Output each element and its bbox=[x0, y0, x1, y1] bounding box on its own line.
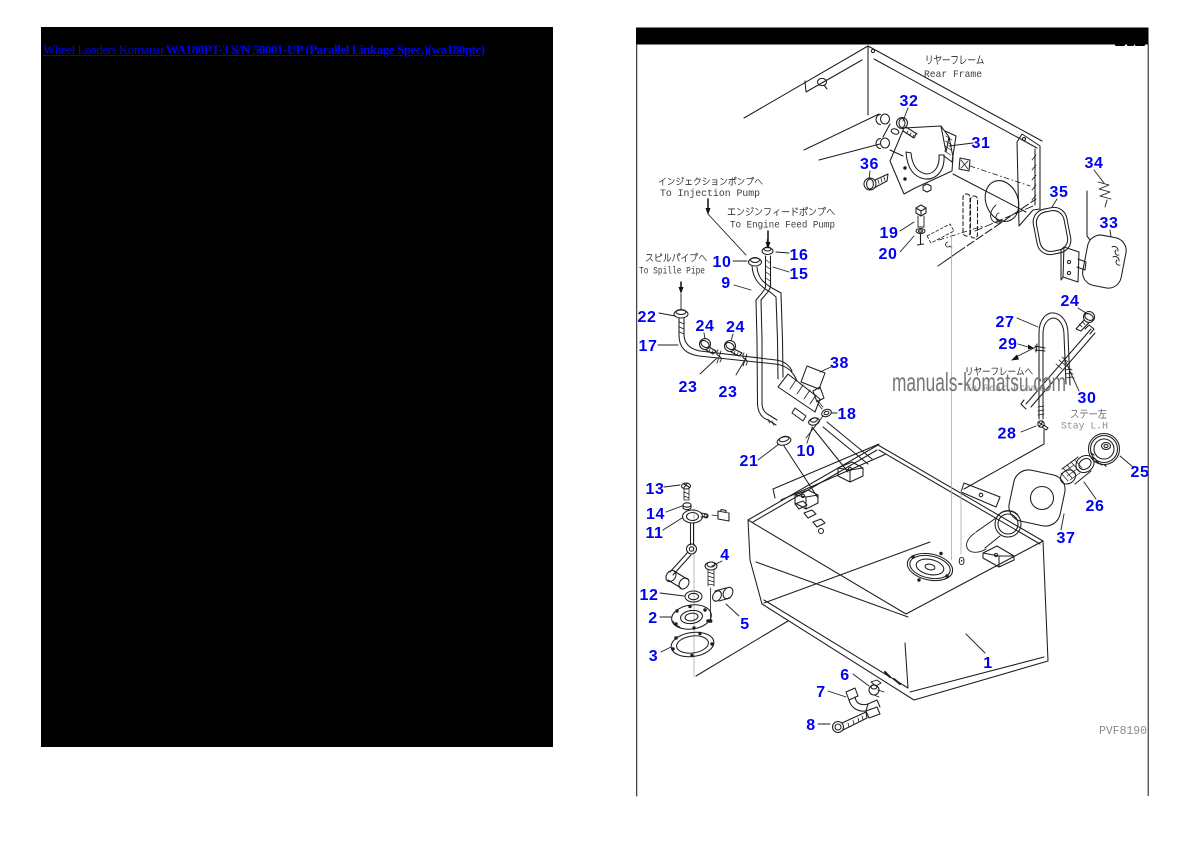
svg-text:manuals-komatsu.com: manuals-komatsu.com bbox=[892, 367, 1066, 397]
svg-text:1: 1 bbox=[983, 655, 993, 672]
svg-text:6: 6 bbox=[840, 667, 850, 684]
svg-text:To Spille Pipe: To Spille Pipe bbox=[639, 266, 705, 278]
svg-text:24: 24 bbox=[1061, 293, 1080, 310]
svg-text:20: 20 bbox=[879, 246, 898, 263]
svg-text:17: 17 bbox=[639, 338, 658, 355]
svg-text:9: 9 bbox=[721, 275, 731, 292]
svg-text:34: 34 bbox=[1085, 155, 1104, 172]
svg-text:5: 5 bbox=[740, 616, 750, 633]
svg-text:13: 13 bbox=[646, 481, 665, 498]
svg-text:15: 15 bbox=[790, 266, 809, 283]
svg-text:10: 10 bbox=[797, 443, 816, 460]
svg-text:26: 26 bbox=[1086, 498, 1105, 515]
svg-text:To Engine Feed Pump: To Engine Feed Pump bbox=[730, 220, 835, 232]
svg-text:24: 24 bbox=[696, 318, 715, 335]
svg-text:35: 35 bbox=[1050, 184, 1069, 201]
svg-text:To Injection Pump: To Injection Pump bbox=[660, 188, 760, 200]
svg-text:8: 8 bbox=[806, 717, 816, 734]
svg-text:16: 16 bbox=[790, 247, 809, 264]
svg-text:29: 29 bbox=[999, 336, 1018, 353]
svg-text:32: 32 bbox=[900, 93, 919, 110]
svg-text:10: 10 bbox=[713, 254, 732, 271]
svg-text:0: 0 bbox=[958, 555, 965, 569]
svg-text:27: 27 bbox=[996, 314, 1015, 331]
svg-text:31: 31 bbox=[972, 135, 991, 152]
svg-text:30: 30 bbox=[1078, 390, 1097, 407]
svg-text:2: 2 bbox=[648, 610, 658, 627]
svg-text:4: 4 bbox=[720, 547, 730, 564]
svg-text:33: 33 bbox=[1100, 215, 1119, 232]
svg-text:36: 36 bbox=[860, 156, 879, 173]
svg-text:38: 38 bbox=[830, 355, 849, 372]
svg-text:14: 14 bbox=[646, 506, 665, 523]
svg-text:22: 22 bbox=[638, 309, 657, 326]
svg-text:37: 37 bbox=[1057, 530, 1076, 547]
svg-text:23: 23 bbox=[679, 379, 698, 396]
svg-text:7: 7 bbox=[816, 684, 826, 701]
svg-text:12: 12 bbox=[640, 587, 659, 604]
svg-text:Rear Frame: Rear Frame bbox=[924, 69, 982, 81]
svg-text:18: 18 bbox=[838, 406, 857, 423]
svg-text:11: 11 bbox=[645, 525, 663, 542]
svg-text:PVF8190: PVF8190 bbox=[1099, 724, 1147, 738]
svg-text:21: 21 bbox=[740, 453, 759, 470]
svg-text:25: 25 bbox=[1131, 464, 1150, 481]
svg-text:23: 23 bbox=[719, 384, 738, 401]
svg-text:28: 28 bbox=[998, 426, 1017, 443]
svg-text:3: 3 bbox=[649, 648, 659, 665]
svg-text:24: 24 bbox=[726, 319, 745, 336]
svg-text:19: 19 bbox=[880, 225, 899, 242]
svg-text:Stay L.H: Stay L.H bbox=[1061, 421, 1108, 433]
